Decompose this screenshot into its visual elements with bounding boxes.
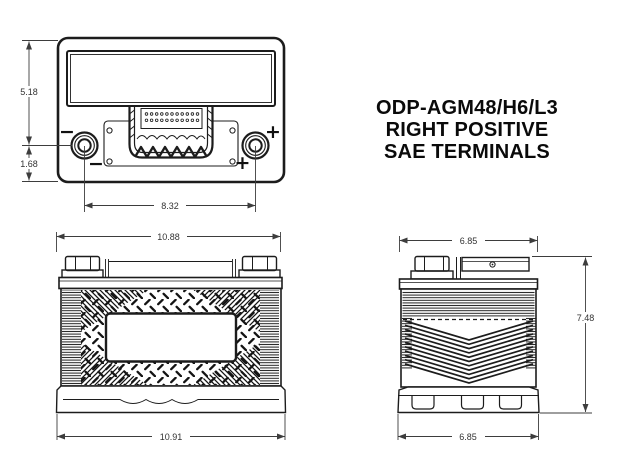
side-base (398, 387, 539, 413)
drawing-sheet: − − + + 5.18 1.68 8.32 (0, 0, 623, 467)
positive-symbol-outer: + (265, 121, 281, 143)
front-lid (59, 278, 282, 289)
dim-label-6-85-top: 6.85 (460, 236, 478, 246)
dim-front-base-width: 10.91 (57, 414, 285, 442)
negative-symbol-outer: − (59, 121, 75, 143)
positive-symbol-inner: + (235, 152, 251, 174)
battery-drawing: − − + + 5.18 1.68 8.32 (0, 0, 623, 467)
front-base (57, 386, 286, 413)
dim-label-10-88: 10.88 (157, 232, 180, 242)
dim-label-10-91: 10.91 (160, 432, 183, 442)
dim-side-height: 7.48 (532, 257, 601, 414)
front-view: 10.88 (57, 231, 286, 442)
front-label-window (106, 314, 236, 362)
side-lid (400, 279, 538, 289)
top-view: − − + + 5.18 1.68 8.32 (17, 38, 284, 212)
front-negative-terminal (62, 257, 103, 278)
side-view: 6.85 (398, 231, 601, 442)
lid-center-ridge (106, 259, 236, 277)
title-line-2: RIGHT POSITIVE (352, 119, 582, 141)
title-line-1: ODP-AGM48/H6/L3 (352, 97, 582, 119)
front-positive-terminal (239, 257, 280, 278)
dim-label-7-48: 7.48 (577, 313, 595, 323)
negative-symbol-inner: − (88, 153, 104, 175)
dim-terminal-offset: 1.68 (17, 147, 41, 181)
title-line-3: SAE TERMINALS (352, 141, 582, 163)
dim-front-top-width: 10.88 (57, 231, 281, 252)
left-rib-strip (62, 290, 81, 385)
side-top-ribs (403, 291, 535, 317)
dim-label-1-68: 1.68 (20, 159, 38, 169)
dim-label-8-32: 8.32 (161, 201, 179, 211)
dim-side-top-depth: 6.85 (400, 231, 538, 252)
dim-label-5-18: 5.18 (20, 87, 38, 97)
dim-label-6-85-bottom: 6.85 (459, 432, 477, 442)
dim-side-base-depth: 6.85 (398, 414, 539, 442)
front-body (61, 289, 281, 387)
side-vent-plate (462, 258, 529, 272)
right-rib-strip (260, 290, 279, 385)
side-body (401, 289, 536, 387)
drawing-title: ODP-AGM48/H6/L3 RIGHT POSITIVE SAE TERMI… (352, 97, 582, 163)
vent-grid (141, 109, 202, 129)
side-terminal (411, 257, 461, 280)
